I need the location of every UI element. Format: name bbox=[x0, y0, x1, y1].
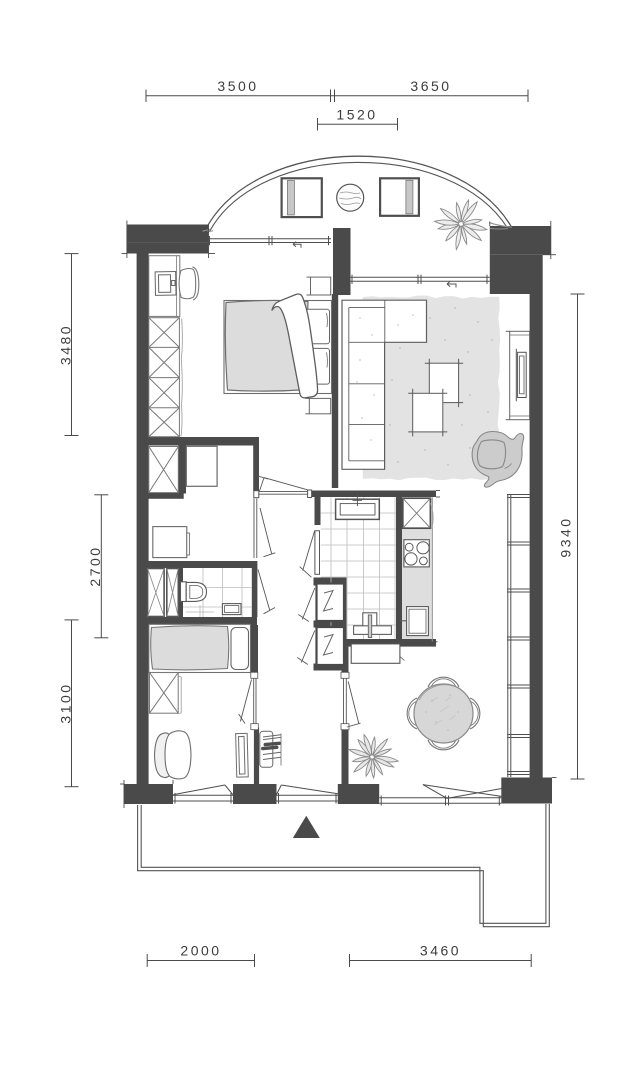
svg-text:3500: 3500 bbox=[217, 78, 258, 94]
svg-text:2000: 2000 bbox=[180, 943, 221, 959]
svg-text:3460: 3460 bbox=[420, 943, 461, 959]
svg-text:9340: 9340 bbox=[558, 516, 574, 557]
svg-text:2700: 2700 bbox=[87, 545, 103, 586]
svg-text:3480: 3480 bbox=[58, 324, 74, 365]
svg-text:1520: 1520 bbox=[336, 107, 377, 123]
svg-text:3100: 3100 bbox=[58, 682, 74, 723]
svg-text:3650: 3650 bbox=[410, 78, 451, 94]
